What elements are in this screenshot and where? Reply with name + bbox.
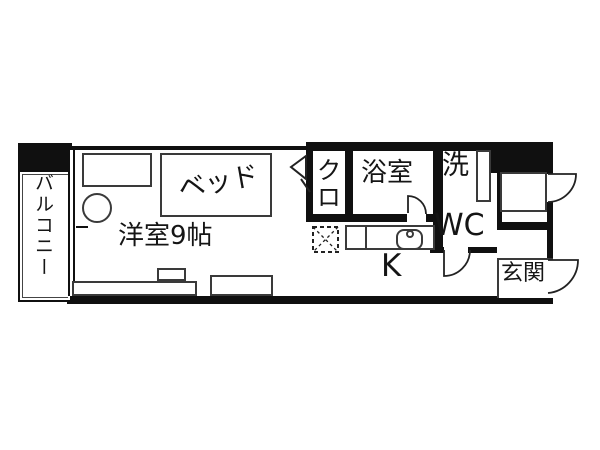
fridge-space xyxy=(313,227,338,252)
round-table xyxy=(83,194,111,222)
bathroom-label: 浴室 xyxy=(361,160,413,186)
window-wall-top xyxy=(72,146,306,150)
wall-right-mid xyxy=(547,202,553,260)
closet-label: クロ xyxy=(315,157,340,211)
wc-door-arc xyxy=(444,250,470,276)
bath-door-arc xyxy=(408,196,426,214)
kitchen-counter-divider xyxy=(365,227,367,248)
cabinet-small xyxy=(157,268,186,281)
washer-pan xyxy=(476,150,491,202)
closet-door-icon xyxy=(291,156,306,179)
meter-door-arc xyxy=(548,174,576,202)
shelf xyxy=(82,153,152,187)
wall-closet-left xyxy=(306,146,313,222)
wall-right-col-horiz xyxy=(497,222,550,230)
window-wall-left xyxy=(68,150,75,296)
pillar-top-left xyxy=(18,143,72,170)
fridge-space-cross xyxy=(313,227,338,252)
wall-under-closet-bath xyxy=(306,214,407,222)
pillar-top-right xyxy=(488,142,547,173)
toilet-label: WC xyxy=(434,211,485,241)
entrance-label: 玄関 xyxy=(501,263,545,285)
kitchen-label: K xyxy=(381,251,401,282)
cabinet xyxy=(210,275,273,296)
laundry-label: 洗 xyxy=(442,152,469,179)
faucet-icon xyxy=(406,230,414,238)
wall-bottom xyxy=(67,296,553,304)
wall-closet-bath xyxy=(345,146,353,222)
counter-low xyxy=(72,281,197,296)
meter-box xyxy=(500,172,547,212)
wall-right-top xyxy=(547,142,553,174)
balcony-label: バルコニー xyxy=(33,173,52,299)
wall-wc-bottom-right xyxy=(468,247,497,253)
floor-plan: バルコニー 洋室9帖 ベッド クロ 浴室 洗 WC K 玄関 xyxy=(0,0,600,450)
main-room-label: 洋室9帖 xyxy=(118,223,213,249)
